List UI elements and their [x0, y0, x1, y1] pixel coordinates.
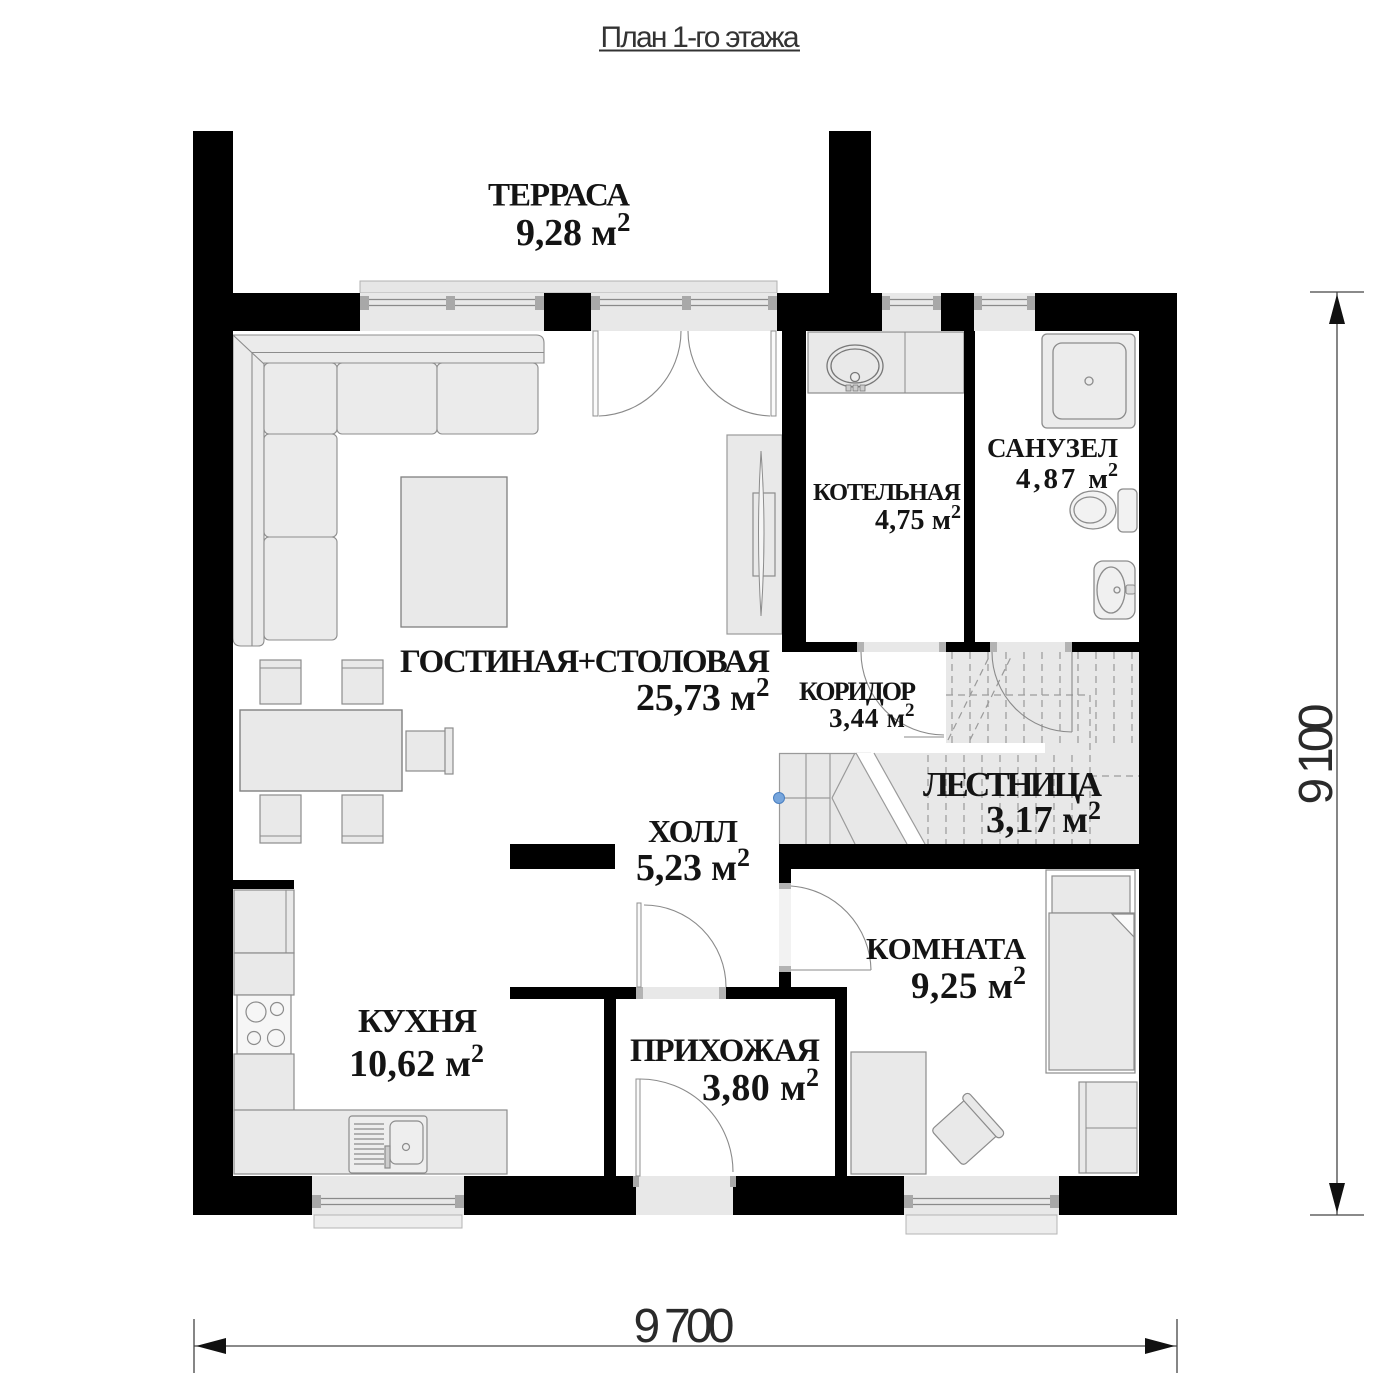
- svg-text:ГОСТИНАЯ+СТОЛОВАЯ: ГОСТИНАЯ+СТОЛОВАЯ: [400, 644, 770, 680]
- svg-text:4,87 м: 4,87 м: [1016, 463, 1108, 495]
- svg-text:КУХНЯ: КУХНЯ: [358, 1003, 477, 1040]
- svg-text:3,80 м: 3,80 м: [702, 1067, 806, 1109]
- svg-text:ХОЛЛ: ХОЛЛ: [648, 813, 738, 849]
- svg-text:ТЕРРАСА: ТЕРРАСА: [488, 178, 630, 214]
- svg-text:2: 2: [471, 1039, 484, 1068]
- svg-text:2: 2: [617, 207, 631, 237]
- svg-text:25,73 м: 25,73 м: [636, 677, 756, 719]
- svg-text:ПРИХОЖАЯ: ПРИХОЖАЯ: [630, 1033, 820, 1069]
- svg-text:2: 2: [737, 843, 750, 872]
- svg-text:План 1-го этажа: План 1-го этажа: [601, 21, 800, 54]
- svg-text:10,62 м: 10,62 м: [349, 1043, 471, 1085]
- svg-text:3,44 м: 3,44 м: [829, 703, 905, 733]
- svg-text:САНУЗЕЛ: САНУЗЕЛ: [987, 433, 1118, 463]
- svg-text:2: 2: [1108, 459, 1118, 481]
- svg-text:КОРИДОР: КОРИДОР: [799, 677, 916, 706]
- svg-text:2: 2: [1088, 796, 1101, 825]
- svg-text:9 100: 9 100: [1290, 704, 1343, 805]
- svg-text:2: 2: [756, 672, 770, 702]
- svg-text:2: 2: [1013, 961, 1026, 990]
- svg-text:4,75 м: 4,75 м: [875, 505, 951, 536]
- svg-text:2: 2: [905, 700, 915, 721]
- svg-text:9,25 м: 9,25 м: [911, 966, 1013, 1007]
- svg-text:5,23 м: 5,23 м: [636, 847, 737, 889]
- svg-text:2: 2: [806, 1063, 819, 1092]
- svg-text:КОТЕЛЬНАЯ: КОТЕЛЬНАЯ: [813, 479, 961, 506]
- svg-text:3,17 м: 3,17 м: [986, 799, 1088, 841]
- svg-text:КОМНАТА: КОМНАТА: [866, 931, 1027, 966]
- svg-text:2: 2: [951, 501, 961, 523]
- svg-text:9,28 м: 9,28 м: [516, 212, 617, 254]
- svg-text:9 700: 9 700: [634, 1300, 735, 1353]
